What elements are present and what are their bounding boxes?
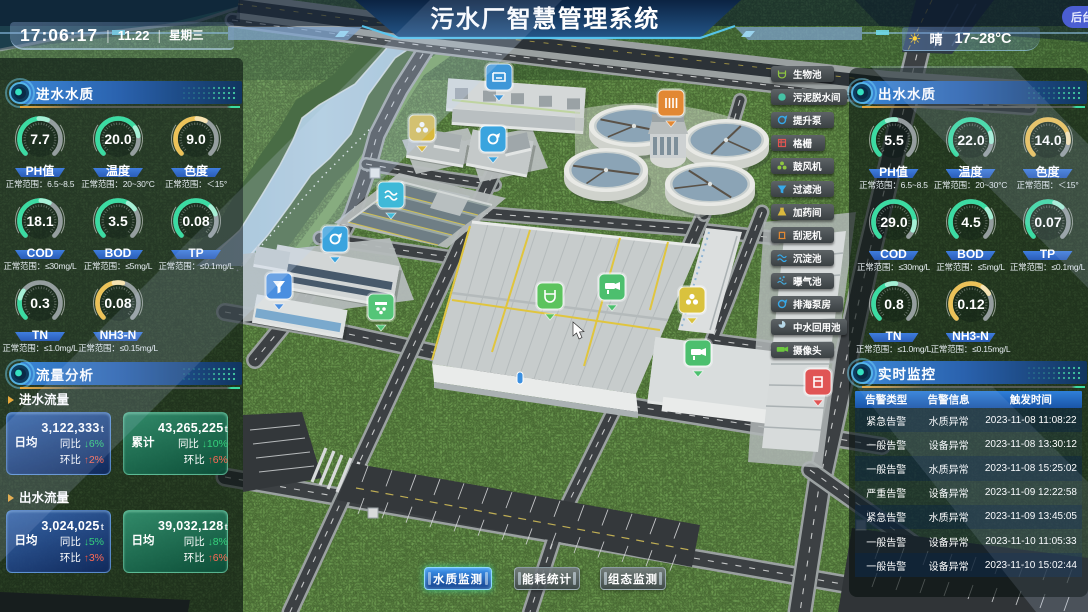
svg-text:22.0: 22.0 [957,132,984,148]
svg-text:污水厂智慧管理系统: 污水厂智慧管理系统 [430,5,660,33]
svg-text:3.5: 3.5 [108,213,128,229]
svg-text:9.0: 9.0 [186,131,206,147]
svg-text:18.1: 18.1 [26,213,53,229]
svg-text:0.8: 0.8 [884,296,904,312]
svg-text:5.5: 5.5 [884,132,904,148]
svg-text:0.08: 0.08 [104,295,131,311]
svg-text:4.5: 4.5 [961,214,981,230]
svg-text:0.3: 0.3 [30,295,50,311]
svg-text:20.0: 20.0 [104,131,131,147]
svg-text:0.08: 0.08 [182,213,209,229]
svg-text:14.0: 14.0 [1034,132,1061,148]
svg-text:29.0: 29.0 [880,214,907,230]
svg-text:0.12: 0.12 [957,296,984,312]
svg-text:0.07: 0.07 [1034,214,1061,230]
svg-text:7.7: 7.7 [30,131,50,147]
